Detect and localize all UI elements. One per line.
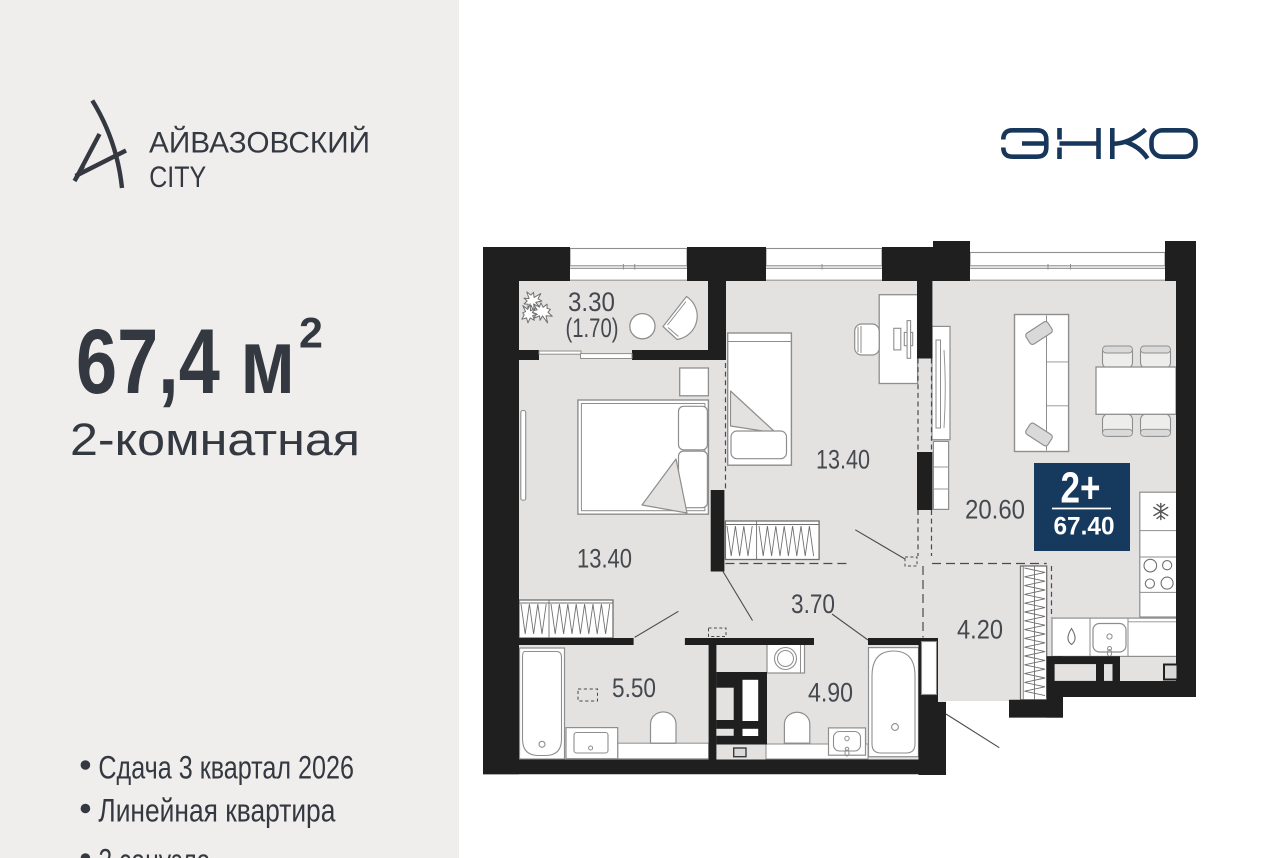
svg-text:2: 2 bbox=[299, 310, 323, 358]
svg-text:(1.70): (1.70) bbox=[566, 313, 619, 343]
svg-text:13.40: 13.40 bbox=[577, 544, 632, 574]
svg-text:4.20: 4.20 bbox=[957, 615, 1003, 645]
svg-text:67.40: 67.40 bbox=[1054, 513, 1115, 541]
svg-text:67,4 м: 67,4 м bbox=[76, 311, 295, 413]
svg-text:20.60: 20.60 bbox=[965, 495, 1025, 525]
svg-text:13.40: 13.40 bbox=[816, 445, 870, 475]
svg-text:АЙВАЗОВСКИЙ: АЙВАЗОВСКИЙ bbox=[149, 126, 370, 160]
svg-text:Сдача 3 квартал 2026: Сдача 3 квартал 2026 bbox=[98, 749, 354, 785]
svg-text:2-комнатная: 2-комнатная bbox=[70, 414, 360, 465]
svg-text:4.90: 4.90 bbox=[808, 678, 853, 708]
svg-text:3.70: 3.70 bbox=[791, 589, 835, 619]
svg-text:Линейная квартира: Линейная квартира bbox=[98, 792, 335, 828]
svg-text:5.50: 5.50 bbox=[612, 673, 656, 703]
svg-text:2+: 2+ bbox=[1061, 463, 1101, 512]
svg-text:CITY: CITY bbox=[149, 161, 206, 194]
svg-text:2 санузла: 2 санузла bbox=[98, 843, 210, 858]
